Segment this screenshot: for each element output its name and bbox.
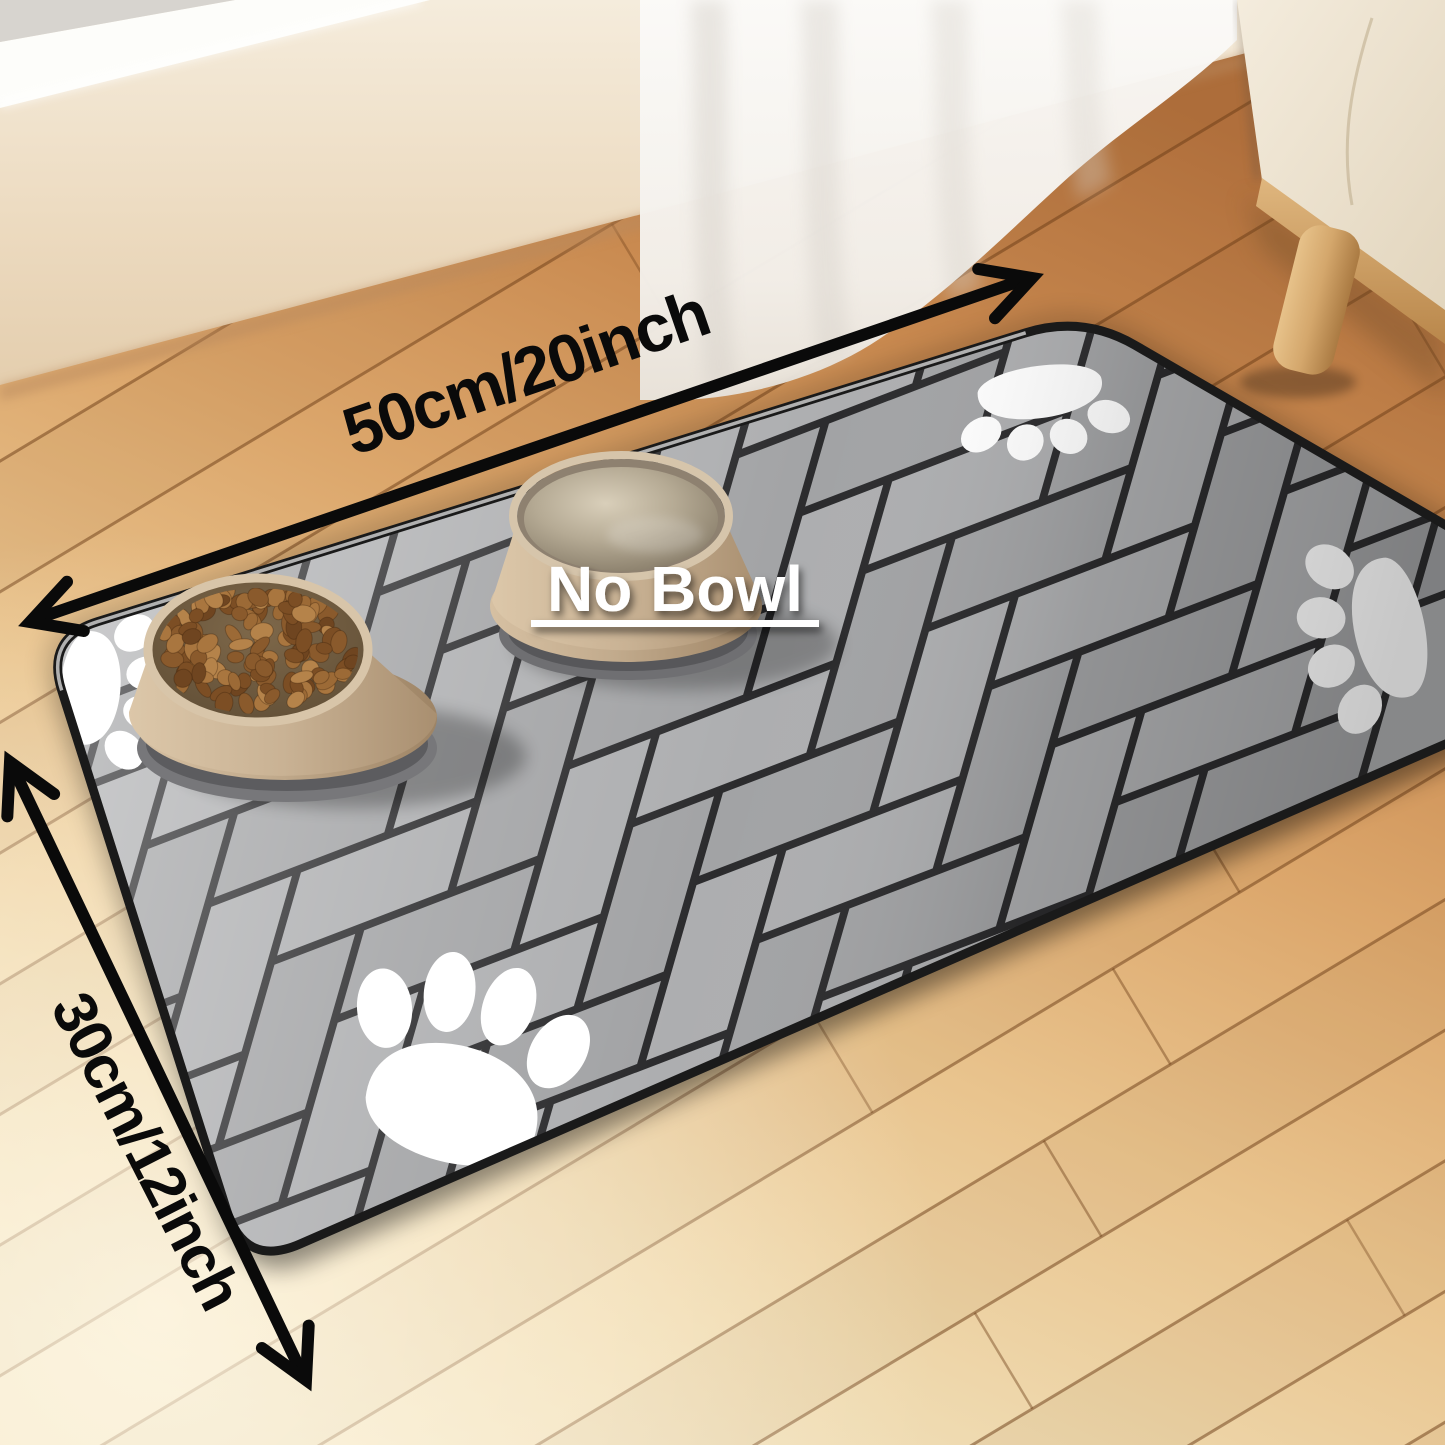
no-bowl-label: No Bowl: [531, 553, 819, 627]
water-highlight: [607, 517, 703, 553]
no-bowl-text: No Bowl: [547, 553, 803, 625]
pet-feeding-mat-product-photo: 50cm/20inch 30cm/12inch No Bowl: [0, 0, 1445, 1445]
scene-svg: 50cm/20inch 30cm/12inch No Bowl: [0, 0, 1445, 1445]
no-bowl-underline: [531, 620, 819, 627]
